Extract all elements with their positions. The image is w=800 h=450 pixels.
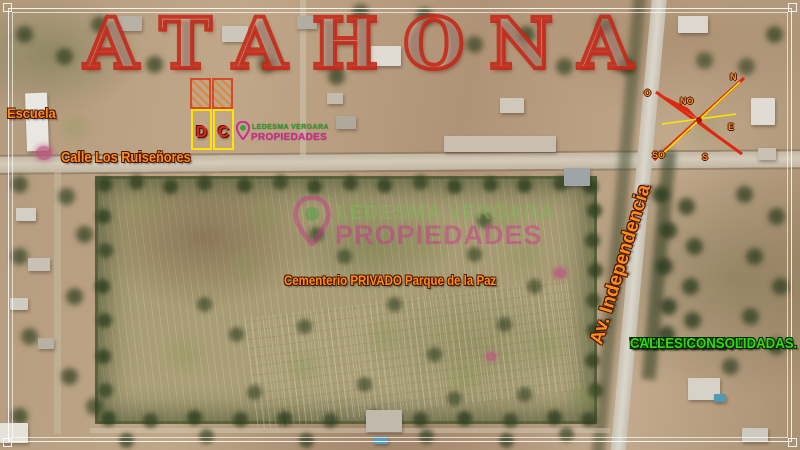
- compass-label-no: NO: [680, 96, 694, 106]
- frame-corner-mark: [3, 438, 12, 447]
- frame-corner-mark: [788, 3, 797, 12]
- listing-image: LEDESMA VERGARA PROPIEDADES ATAHONA Escu…: [0, 0, 800, 450]
- label-cemetery: Cementerio PRIVADO Parque de la Paz: [284, 272, 496, 288]
- compass-label-n: N: [730, 72, 737, 82]
- compass-label-s: S: [702, 152, 708, 162]
- brand-type: PROPIEDADES: [251, 132, 327, 143]
- frame-corner-mark: [3, 3, 12, 12]
- location-pin-icon: [236, 121, 250, 140]
- compass-label-o: O: [644, 88, 651, 98]
- page-title: ATAHONA: [84, 2, 657, 85]
- frame-corner-mark: [788, 438, 797, 447]
- feature-text: CALLES CONSOLIDADAS.: [630, 335, 797, 352]
- sold-lot-marker: [212, 78, 233, 109]
- lot-c-marker: C: [213, 109, 234, 150]
- compass-rose: N O NO E S SO: [644, 74, 754, 166]
- sold-lot-marker: [190, 78, 211, 109]
- label-school: Escuela: [7, 105, 56, 121]
- lot-d-marker: D: [191, 109, 212, 150]
- compass-label-e: E: [728, 122, 734, 132]
- label-street: Calle Los Ruiseñores: [61, 149, 191, 166]
- brand-name: LEDESMA VERGARA: [252, 124, 329, 131]
- compass-label-so: SO: [652, 150, 665, 160]
- brand-logo: LEDESMA VERGARA PROPIEDADES: [236, 121, 336, 147]
